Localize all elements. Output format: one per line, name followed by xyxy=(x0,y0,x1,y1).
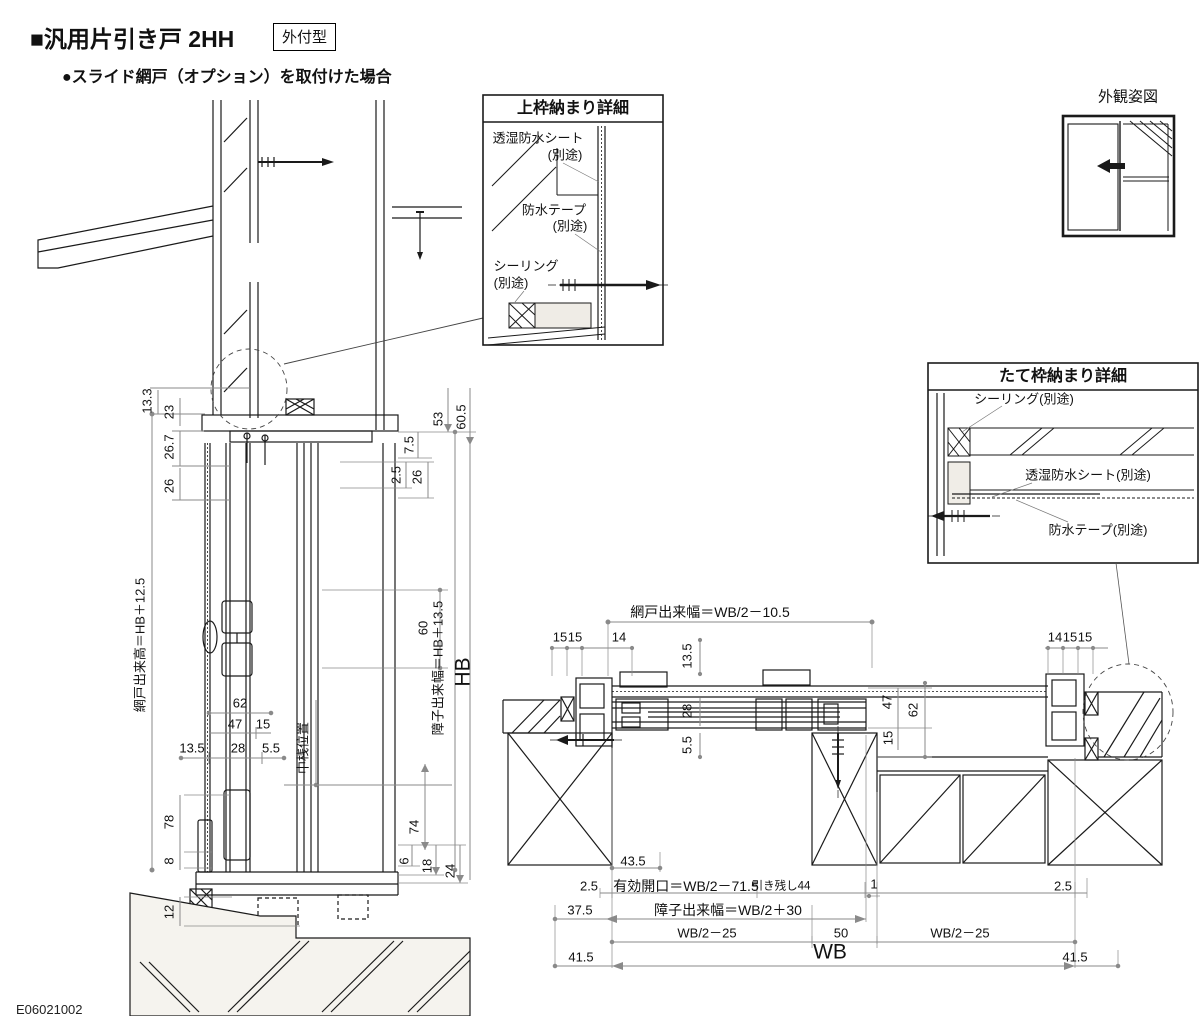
dim-18: 18 xyxy=(421,859,434,873)
dim-tr-15b: 15 xyxy=(1078,631,1092,644)
label-side-sheet: 透湿防水シート(別途) xyxy=(1025,469,1151,482)
vertical-section-lineart xyxy=(38,100,470,1016)
dim-tr-14: 14 xyxy=(1048,631,1062,644)
vertical-section-dims xyxy=(150,388,476,926)
dim-74: 74 xyxy=(408,820,421,834)
dim-hb: HB xyxy=(453,657,474,686)
dim-tl-15a: 15 xyxy=(553,631,567,644)
dim-sash-height: 障子出来幅＝HB＋13.5 xyxy=(432,601,445,735)
page-title: ■汎用片引き戸 2HH xyxy=(30,20,234,54)
label-tape-note: (別途) xyxy=(553,220,588,233)
dim-26r: 26 xyxy=(411,470,424,484)
dim-l-13-5: 13.5 xyxy=(681,643,694,668)
dim-mesh-width: 網戸出来幅＝WB/2－10.5 xyxy=(630,605,789,619)
plan-section-lineart xyxy=(503,670,1162,865)
dim-r-62: 62 xyxy=(907,703,920,717)
dim-tl-15b: 15 xyxy=(568,631,582,644)
dim-5-5: 5.5 xyxy=(262,742,280,755)
dim-wb-left: WB/2－25 xyxy=(677,927,736,940)
dim-12: 12 xyxy=(163,905,176,919)
dim-26-7: 26.7 xyxy=(163,434,176,459)
appearance-diagram xyxy=(1063,116,1174,236)
drawing-page: ■汎用片引き戸 2HH 外付型 ●スライド網戸（オプション）を取付けた場合 E0… xyxy=(0,0,1200,1016)
dim-41-5-right: 41.5 xyxy=(1062,951,1087,964)
dim-78: 78 xyxy=(163,815,176,829)
top-detail-title: 上枠納まり詳細 xyxy=(517,101,629,117)
dim-62: 62 xyxy=(233,697,247,710)
dim-wb: WB xyxy=(813,942,847,963)
label-tape: 防水テープ xyxy=(522,204,586,217)
dim-l-28: 28 xyxy=(681,704,694,718)
label-sheet: 透湿防水シート xyxy=(492,132,583,145)
dim-24: 24 xyxy=(444,864,457,878)
dim-7-5: 7.5 xyxy=(403,436,416,454)
dim-23: 23 xyxy=(163,405,176,419)
dim-r-15: 15 xyxy=(882,731,895,745)
dim-l-5-5: 5.5 xyxy=(681,736,694,754)
dim-sash-width: 障子出来幅＝WB/2＋30 xyxy=(654,903,802,917)
dim-wb-right: WB/2－25 xyxy=(930,927,989,940)
dim-2-5: 2.5 xyxy=(390,466,403,484)
dim-43-5: 43.5 xyxy=(620,855,645,868)
side-detail-box xyxy=(928,363,1198,664)
dim-2-5-right: 2.5 xyxy=(1054,880,1072,893)
appearance-title: 外観姿図 xyxy=(1098,90,1158,105)
dim-28: 28 xyxy=(231,742,245,755)
side-detail-title: たて枠納まり詳細 xyxy=(999,369,1127,385)
dim-60-5: 60.5 xyxy=(455,404,468,429)
dim-13-3: 13.3 xyxy=(141,388,154,413)
type-badge: 外付型 xyxy=(273,23,336,51)
dim-47: 47 xyxy=(228,718,242,731)
label-seal: シーリング xyxy=(493,260,558,273)
dim-6: 6 xyxy=(398,857,411,864)
label-sheet-note: (別途) xyxy=(548,149,583,162)
dim-41-5-left: 41.5 xyxy=(568,951,593,964)
label-seal-note: (別途) xyxy=(494,277,529,290)
label-nakasan: 中桟位置 xyxy=(297,722,310,774)
label-side-tape: 防水テープ(別途) xyxy=(1049,524,1148,537)
dim-15: 15 xyxy=(256,718,270,731)
dim-13-5: 13.5 xyxy=(179,742,204,755)
dim-60: 60 xyxy=(417,621,430,635)
dim-26: 26 xyxy=(163,479,176,493)
dim-mesh-height: 網戸出来高＝HB＋12.5 xyxy=(134,578,147,712)
dim-1: 1 xyxy=(870,878,877,891)
dim-8: 8 xyxy=(163,857,176,864)
dim-tl-14: 14 xyxy=(612,631,626,644)
dim-tr-15a: 15 xyxy=(1063,631,1077,644)
dim-2-5-left: 2.5 xyxy=(580,880,598,893)
dim-opening: 有効開口＝WB/2－71.5 xyxy=(613,879,758,893)
dim-53: 53 xyxy=(432,412,445,426)
page-subtitle: ●スライド網戸（オプション）を取付けた場合 xyxy=(62,63,392,87)
document-code: E06021002 xyxy=(16,1002,83,1016)
dim-hikinokoshi: 引き残し44 xyxy=(752,881,811,893)
dim-50: 50 xyxy=(834,927,848,940)
dim-37-5: 37.5 xyxy=(567,904,592,917)
dim-r-47: 47 xyxy=(881,695,894,709)
drawing-canvas xyxy=(0,0,1200,1016)
label-side-seal: シーリング(別途) xyxy=(974,393,1074,406)
